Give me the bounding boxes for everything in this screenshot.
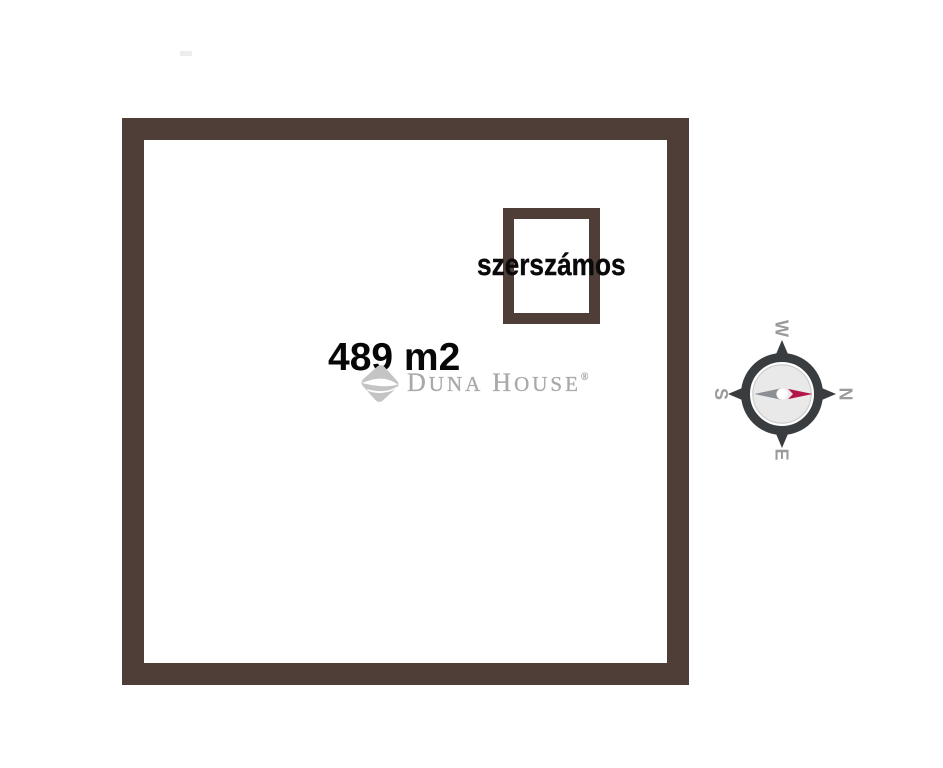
svg-text:N: N: [836, 388, 856, 401]
svg-text:W: W: [772, 320, 792, 337]
svg-text:E: E: [772, 448, 792, 460]
svg-text:S: S: [711, 388, 731, 400]
